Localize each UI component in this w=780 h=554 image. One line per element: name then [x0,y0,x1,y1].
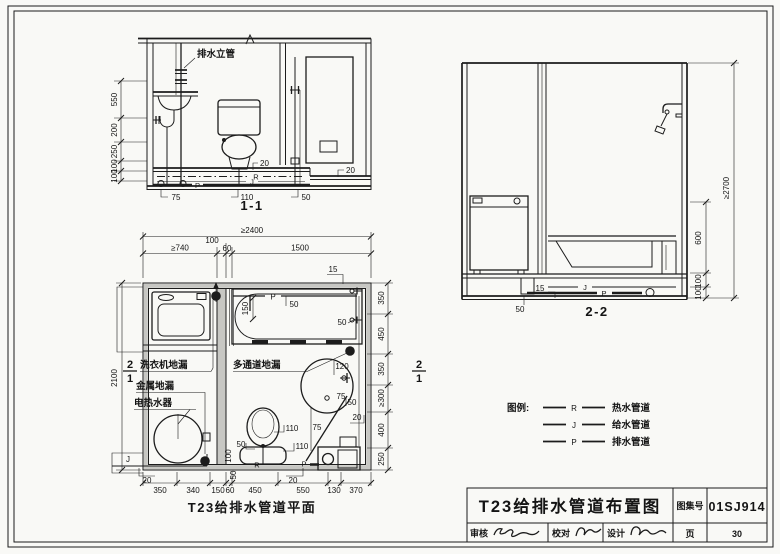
partition-wall [217,289,226,465]
toilet-plan [240,408,286,464]
drain-pipe-label: P [195,181,200,190]
riser-leader [184,58,195,68]
dim-r-450: 450 [377,327,386,341]
caption-1-1: 1-1 [240,198,263,213]
design-label: 设计 [607,528,625,539]
drawing-title: T23给排水管道布置图 [479,496,661,516]
ann-tub-50: 50 [290,300,299,309]
dim-100: 100 [205,236,219,245]
ann-pipe-j: J [126,455,130,464]
legend: 图例: R 热水管道 J 给水管道 P 排水管道 [507,402,651,448]
dim-740: ≥740 [171,244,189,253]
washing-machine-section [470,196,528,274]
ann-j-20: 20 [143,476,152,485]
exterior-wall-top-left [117,287,143,352]
dim-b-350: 350 [153,486,167,495]
dim-100b: 100 [110,169,119,183]
review-label: 审核 [470,528,488,539]
atlas-number: 01SJ914 [708,500,765,514]
review-signature [494,529,539,537]
section-2-2: J P 15 50 ≥2700 600 100 100 2-2 [462,60,739,319]
label-metal-drain: 金属地漏 [135,380,175,392]
dim-b-340: 340 [186,486,200,495]
dim-b-150: 150 [211,486,225,495]
dim-20-right: 20 [346,166,355,175]
proof-label: 校对 [552,528,570,539]
legend-label: 给水管道 [612,419,651,431]
ann-15-2-2: 15 [536,284,545,293]
proof-signature [576,528,601,536]
shower-mixer-icon [655,104,682,134]
legend-title: 图例: [507,402,529,414]
dim-550: 550 [110,92,119,106]
dim-r-300: ≥300 [377,389,386,407]
ann-wall-50: 50 [338,318,347,327]
dim-600: 600 [694,231,703,245]
design-signature [631,527,666,535]
dim-2100: 2100 [110,369,119,387]
washbasin-section [153,92,198,184]
dim-r-350a: 350 [377,291,386,305]
pipes-1-1: R J P [153,173,310,191]
ann-pipe-p: P [301,460,306,469]
dim-b-450: 450 [248,486,262,495]
page-number: 30 [732,529,742,539]
legend-item-drain-water: P 排水管道 [543,436,651,448]
dim-75: 75 [172,193,181,202]
dim-b-370: 370 [349,486,363,495]
dim-r-400: 400 [377,423,386,437]
dim-b-130: 130 [327,486,341,495]
heater-closet [290,57,353,184]
dims-left-1-1: 550 200 250 100 100 [110,78,147,184]
washing-machine-plan [152,292,210,340]
ann-wc-110a: 110 [286,424,299,433]
legend-label: 热水管道 [612,402,651,414]
dim-b-60: 60 [226,486,235,495]
ann-vert-50: 50 [229,470,238,479]
label-washer-drain: 洗衣机地漏 [140,359,188,371]
dim-200: 200 [110,123,119,137]
bathtub-section [548,236,676,274]
section-marker-right: 2 1 [412,359,426,385]
section-marker-left: 2 1 [123,359,137,385]
drain-riser [175,43,187,184]
ann-basin-50: 50 [348,398,357,407]
legend-symbol: P [571,438,576,447]
section-1-1: 排水立管 [110,35,371,213]
corner-drain-box [318,437,360,470]
ann-j-2-2: J [583,283,587,292]
ann-pipe-r: R [254,461,260,470]
dim-100b: 100 [694,286,703,300]
label-heater: 电热水器 [134,397,173,409]
legend-symbol: J [572,421,576,430]
ann-50-2-2: 50 [516,305,525,314]
ann-wc-20: 20 [289,476,298,485]
dim-50: 50 [302,193,311,202]
hot-pipe-label: R [253,173,259,182]
marker-den: 1 [416,373,422,385]
dim-2700: ≥2700 [722,176,731,199]
caption-2-2: 2-2 [585,304,608,319]
riser-label: 排水立管 [197,48,236,60]
water-heater-plan [154,414,210,463]
dims-bottom-plan: 350 340 150 60 450 550 130 370 [140,472,374,495]
marker-num: 2 [416,359,422,371]
dim-b-550: 550 [296,486,310,495]
ann-wall-15: 15 [329,265,338,274]
marker-den: 1 [127,373,133,385]
dims-left-plan: 2100 [110,280,141,473]
ann-wc-50: 50 [237,440,246,449]
dim-60: 60 [223,244,232,253]
plan-view: P 50 150 15 50 120 [110,226,426,515]
ann-tub-150: 150 [241,301,250,315]
dims-right-2-2: ≥2700 600 100 100 [688,60,739,301]
legend-item-supply-water: J 给水管道 [543,419,651,431]
ann-wc-110b: 110 [296,442,309,451]
legend-label: 排水管道 [612,436,651,448]
ann-left-75: 75 [313,423,322,432]
ann-wc-100: 100 [224,449,233,463]
bathtub-plan [232,289,362,344]
ann-tub-p: P [270,293,275,302]
caption-plan: T23给排水管道平面 [188,500,316,515]
label-multi-drain: 多通道地漏 [233,359,281,371]
title-block: T23给排水管道布置图 图集号 01SJ914 审核 校对 设计 页 30 [467,488,767,542]
dim-r-350b: 350 [377,362,386,376]
multi-channel-drain [345,346,355,356]
dim-1500: 1500 [291,244,309,253]
dim-20-toilet: 20 [260,159,269,168]
atlas-label: 图集号 [676,500,703,511]
dims-top-plan: ≥2400 ≥740 100 60 1500 [140,226,374,278]
drawing-sheet: 排水立管 [0,0,780,554]
dim-100a: 100 [694,274,703,288]
page-label: 页 [685,529,694,539]
drawing-canvas: 排水立管 [0,0,780,554]
ann-basin-20: 20 [353,413,362,422]
legend-item-hot-water: R 热水管道 [543,402,651,414]
ann-basin-120: 120 [335,362,349,371]
ann-p-2-2: P [601,289,606,298]
marker-num: 2 [127,359,133,371]
dim-250: 250 [110,144,119,158]
dim-r-250: 250 [377,452,386,466]
legend-symbol: R [571,404,577,413]
dim-total-top: ≥2400 [241,226,264,235]
